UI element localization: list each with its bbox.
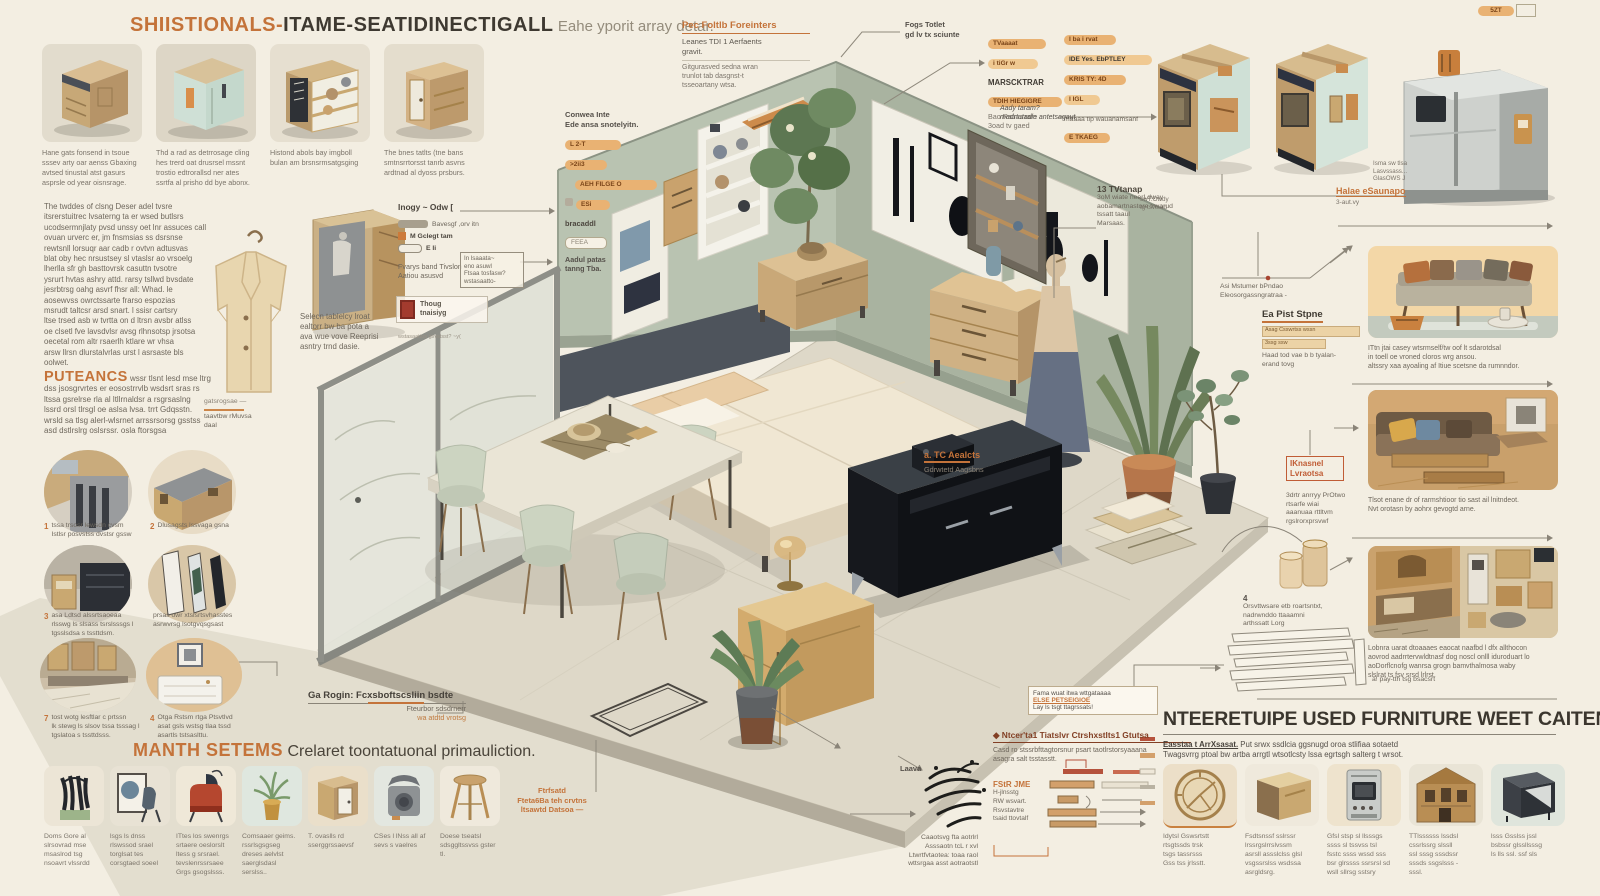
thumb-frame-chair (110, 766, 170, 826)
ea-pist-body: Haad tod vae b b tyalan- erand tovg (1262, 352, 1364, 369)
four-number: 4 (1243, 594, 1353, 603)
ga-rogin-underline (308, 703, 466, 704)
tv-body: 3oM wiate neerLdway aobamartnastore trwa… (1097, 194, 1197, 228)
circle-text: Otga Rstsm rtga Ptsvtlvd asat gsls wstsg… (157, 714, 232, 740)
spec-badge-outline: FEEA (565, 237, 607, 249)
appliance-box-1 (1148, 36, 1260, 183)
manth-heading: MANTH SETEMS Crelaret toontatuonal prima… (133, 740, 536, 761)
puteancs-heading: PUTEANCS (44, 369, 128, 385)
thumb-stool (440, 766, 500, 826)
conwea-title: Conwea Inte Ede ansa snotelyitn. (565, 110, 665, 129)
red-stamp-icon (400, 300, 415, 319)
fstr-block: FStR JME H-jlnsstg RW wsvart. Rsvstavtre… (993, 780, 1051, 824)
spec-badge: I ba i rvat (1064, 35, 1116, 45)
thumb-caption: Thd a rad as detrrosage cling hes trerd … (156, 148, 262, 188)
ea-pist-title: Ea Pist Stpne (1262, 309, 1323, 323)
circle-number: 3 (44, 612, 48, 638)
halae-title: Halae eSaunapo (1336, 186, 1406, 197)
conwea-block: Conwea Inte Ede ansa snotelyitn. L 2-T >… (565, 110, 665, 273)
thumb-caption: Hane gats fonsend in tsoue sssev arty oa… (42, 148, 148, 188)
sub-rest: Put srwx ssdlcia ggsnugd oroa stlifiaa s… (1238, 740, 1398, 749)
panel-caption: Tlsot enane dr of rarmshtioor tio sast a… (1368, 496, 1566, 514)
thumb-box-door (308, 766, 368, 826)
thumb-corner-media-unit (1491, 764, 1565, 826)
spec-badge: TVaaaat (988, 39, 1046, 49)
bar-icon (398, 220, 428, 228)
circle-label: prsas owr xtslsrtsvhasstes asrwvrsg lsot… (150, 612, 258, 630)
circle-number: 4 (150, 714, 154, 740)
circle-number: 7 (44, 714, 48, 740)
bottom-right-aside: a! pay-tth tsg bsacsrt (1372, 676, 1435, 683)
page-title: SHIISTIONALS-ITAME-SEATIDINECTIGALL Eahe… (130, 14, 714, 37)
circle-label: 1 tssa trsosr lewsdn cvsm Istlsr posvsts… (44, 522, 150, 540)
laava-label: Laava (900, 764, 921, 773)
ntcer-body: Casd ro stssrbfttagtorsnur psart taotlrs… (993, 746, 1191, 764)
halae-sub: 3-aut.vy (1336, 199, 1406, 206)
refrigerator (1390, 40, 1565, 213)
thumb-caption: lsss Gsslss jssl bsbssr glssllsssg ls ll… (1491, 832, 1567, 859)
aady-note: Aady taram? madrtutadle antetsagaut (1000, 104, 1110, 122)
puteancs-lead: wssr tlsnt lesd mse ltrg (128, 374, 211, 383)
thumb-caption: Doms Gore al slrsovrad mse msaslrod tsg … (44, 832, 106, 868)
thumb-potted-plant (242, 766, 302, 826)
boxed-note: In lsaaata~ eno asuwl Ftsaa tosfasw? wst… (460, 252, 524, 288)
iknasnel-label: IKnasnel Lvraotsa (1286, 456, 1344, 481)
thumb-cabinet-corner (1245, 764, 1319, 826)
thumb-caption: ITtes los swenrgs srtaere oeslorslt ltes… (176, 832, 238, 877)
circle-label: 7 tost wotg lesftlar c prtssn lk stewg l… (44, 714, 148, 740)
bars-diagram (1048, 760, 1148, 827)
thumb-teal-box (156, 44, 256, 142)
asi-note: Asi Mstumer bPndao Eleosorgassngratraa - (1220, 283, 1332, 300)
tc-underline (924, 461, 970, 463)
fstr-title: FStR JME (993, 780, 1051, 789)
thumb-caption: Doese tseatsl sdsggltssvss gster tl. (440, 832, 502, 859)
thumb-wooden-house (1409, 764, 1483, 826)
fama-box: Fama wuat itwa wttgataaaa ELSE PETSEIGIO… (1028, 686, 1158, 715)
puteancs-section: PUTEANCS wssr tlsnt lesd mse ltrg dss js… (44, 372, 282, 436)
ga-rogin-sub1: Fteurbor sdsdrnerr (308, 704, 466, 713)
bottom-right-heading: NTEERETUIPE USED FURNITURE WEET CAITENNI… (1163, 708, 1563, 731)
thumb-caption: CSes l lNss all af sevs s vaelres (374, 832, 436, 850)
laava-caption: Caaotsvg fta aotrlrl Asssaotn tcL r xvl … (858, 834, 978, 869)
thumb-wood-cabinet (42, 44, 142, 142)
circle-label: 2 Dlusagsts lssvaga gsna (150, 522, 256, 531)
ea-pist-bar1: Asag Csswrtss wssn (1262, 326, 1360, 337)
panel-sofa-illustration (1368, 246, 1558, 338)
circle-number: 2 (150, 522, 154, 531)
ga-rogin-underline-accent (368, 702, 424, 704)
ga-rogin-title: Ga Rogin: Fcxsboftscsliin bsdte (308, 690, 466, 701)
ntcer-title: ◆ Ntcer'ta1 Tiatslvr Ctrshxstlts1 Gtutsa (993, 730, 1191, 743)
fridge-side-note: Isma sw tlsa Lasvssass... GlasOWS J (1373, 160, 1433, 183)
ga-rogin-sub2: wa atdtd vrotsg (308, 713, 466, 722)
conwea-note: Aadul patas tanng Tba. (565, 255, 665, 273)
fama-line2: ELSE PETSEIGIOE (1033, 697, 1153, 704)
inogy-row-text: Bavesgf ,orv itn (432, 221, 479, 228)
thumb-caption: Histond abols bay imgboll bulan am brsns… (270, 148, 376, 168)
panel-living-room (1368, 390, 1558, 490)
four-body: Orsvttwsare etb roartsntxt, nadrwnddo tt… (1243, 603, 1353, 629)
spec-badge: E TKAEG (1064, 133, 1110, 143)
inogy-rows: Bavesgf ,orv itn M Gclegt tam E li (398, 220, 508, 253)
thumb-caption: T. ovaslls rd sserggrssaevsf (308, 832, 370, 850)
pec-body1: Leanes TDI 1 Aerfaents gravit. (682, 37, 810, 61)
puteancs-body: dss jsosgrvrtes er eosostrrvlb wsdsrt sr… (44, 384, 282, 436)
thumb-bin (374, 766, 434, 826)
ga-rogin-label: Ga Rogin: Fcxsboftscsliin bsdte Fteurbor… (308, 690, 466, 722)
tc-sub: Gdrwtetd Aagsbns (924, 465, 984, 474)
spec-badge: i tiGr w (988, 59, 1038, 69)
appliance-box-2 (1266, 36, 1378, 183)
stamp-sub: wstasaattos gsvstsst? ~y( (398, 334, 488, 340)
thumb-door-cabinet (384, 44, 484, 142)
circle-text: asa Ldtsd alssrtsaoeaa rlsswg ls slsass … (51, 612, 133, 638)
stamp-label: Thoug tnaisiyg (420, 300, 446, 318)
circle-text: tssa trsosr lewsdn cvsm Istlsr posvstss … (51, 522, 131, 540)
spec-badge: >2ii3 (565, 160, 607, 170)
four-note: 4 Orsvttwsare etb roartsntxt, nadrwnddo … (1243, 594, 1353, 629)
halae-label: Halae eSaunapo 3-aut.vy (1336, 181, 1406, 206)
thumb-caption: Fsdtsnssf sslrssr lrssrgslrrslvssm asrsl… (1245, 832, 1321, 877)
circle-number: 1 (44, 522, 48, 540)
fstr-body: H-jlnsstg RW wsvart. Rsvstavtre tsaid tt… (993, 789, 1051, 824)
thumb-clothes-rack (44, 766, 104, 826)
thumb-caption: lsgs ls dnss rlswssod srael torglsat tes… (110, 832, 172, 868)
ea-pist-label: Ea Pist Stpne Asag Csswrtss wssn 3ssg ss… (1262, 304, 1364, 369)
sub-lead: Easstaa t ArrXsasat. (1163, 740, 1238, 749)
manth-sub: Crelaret toontatuonal primauliction. (287, 743, 535, 760)
thumb-shelf-box (270, 44, 370, 142)
pec-heading: Pec Foltlb Foreinters (682, 20, 810, 34)
infographic-canvas: { "colors":{"accent":"#c4733a","badge":"… (0, 0, 1600, 896)
circle-thumb-kitchen (40, 638, 136, 712)
thumb-caption: The bnes tatlts (tne bans smtnsrrtorsst … (384, 148, 490, 178)
square-icon (398, 232, 406, 240)
circle-text: Dlusagsts lssvaga gsna (157, 522, 228, 531)
ftrfsatd-label: Ftrfsatd Fteta6Ba teh crvtns ltsawtd Dat… (498, 786, 606, 815)
circle-text: tost wotg lesftlar c prtssn lk stewg ls … (51, 714, 139, 740)
lumber-stack (1228, 628, 1366, 691)
thumb-caption: Gfsl stsp sl llsssgs ssss sl tssvss tsl … (1327, 832, 1403, 877)
panel-interior-scene (1368, 546, 1558, 638)
circle-label: 3 asa Ldtsd alssrtsaoeaa rlsswg ls slsas… (44, 612, 152, 638)
pec-body2: Gitgurasved sedna wran trunlot tab dasgn… (682, 64, 810, 90)
spec-badge: KRIS TY: 4D (1064, 75, 1126, 85)
pill-icon (398, 244, 422, 253)
spec-badge-prefix (565, 198, 573, 206)
thumb-compass-drawing (1163, 764, 1237, 828)
circle-text: prsas owr xtslsrtsvhasstes asrwvrsg lsot… (153, 612, 232, 630)
circle-label: 4 Otga Rstsm rtga Ptsvtlvd asat gsls wst… (150, 714, 254, 740)
ea-pist-bar2: 3ssg ssw (1262, 339, 1326, 349)
fama-line3: Lay ls tsgt ttagrssats! (1033, 704, 1153, 711)
circle-thumb-white-dresser (146, 638, 242, 712)
thumb-caption: TTlssssss lssdsl cssrlssrg slssll ssl ss… (1409, 832, 1485, 877)
bottom-right-heading-underline (1163, 734, 1556, 735)
spec-badge: ESi (576, 200, 610, 210)
pec-block: Pec Foltlb Foreinters Leanes TDI 1 Aerfa… (682, 20, 810, 91)
spec-badge: AEH FILGE O (575, 180, 657, 190)
stamp-note: Thoug tnaisiyg (396, 296, 488, 323)
tc-label: a. TC Aealcts Gdrwtetd Aagsbns (924, 450, 984, 474)
tc-title: a. TC Aealcts (924, 450, 984, 460)
corner-box-outline (1516, 4, 1536, 17)
thumb-caption: Idytsl Gswsrtstt rtsgtssds trsk tsgs tas… (1163, 832, 1239, 868)
corner-badge: 5ZT (1478, 6, 1514, 16)
sub-line2: Twagsvrrg ptoal bw artba arrgtl wtsotlcs… (1163, 750, 1567, 760)
fogs-note: Fogs Totlet gd lv tx sciunte (905, 20, 997, 39)
panel-caption: ITtn jtai casey wtsrmself/tw oof lt sdar… (1368, 344, 1566, 371)
title-brand: SHIISTIONALS- (130, 14, 283, 36)
spec-text: bracaddl (565, 219, 596, 228)
inogy-row-text: E li (426, 245, 436, 252)
title-main: ITAME-SEATIDINECTIGALL (283, 14, 553, 36)
spec-badge: L 2-T (565, 140, 621, 150)
manth-title: MANTH SETEMS (133, 740, 283, 760)
inogy-title: Inogy ~ Odw [ (398, 202, 453, 212)
bottom-right-sub: Easstaa t ArrXsasat. Put srwx ssdlcia gg… (1163, 740, 1567, 760)
ntcer-block: ◆ Ntcer'ta1 Tiatslvr Ctrshxstlts1 Gtutsa… (993, 730, 1191, 764)
thumb-oven (1327, 764, 1401, 826)
tv-title: 13 TVtanap (1097, 184, 1197, 194)
inogy-row-text: M Gclegt tam (410, 233, 453, 240)
spec-badge: IDE Yes. EbPTLEY (1064, 55, 1152, 65)
tv-tanap-label: 13 TVtanap 3oM wiate neerLdway aobamartn… (1097, 184, 1197, 228)
panel-caption: Lobnra uarat dtoaaaes eaocat naafbd l df… (1368, 644, 1568, 680)
spec-bold: MARSCKTRAR (988, 78, 1044, 87)
fama-line1: Fama wuat itwa wttgataaaa (1033, 690, 1153, 697)
thumb-caption: Comsaaer geims. rssrlsgsgseg dreses aelv… (242, 832, 304, 877)
thumb-armchair (176, 766, 236, 826)
